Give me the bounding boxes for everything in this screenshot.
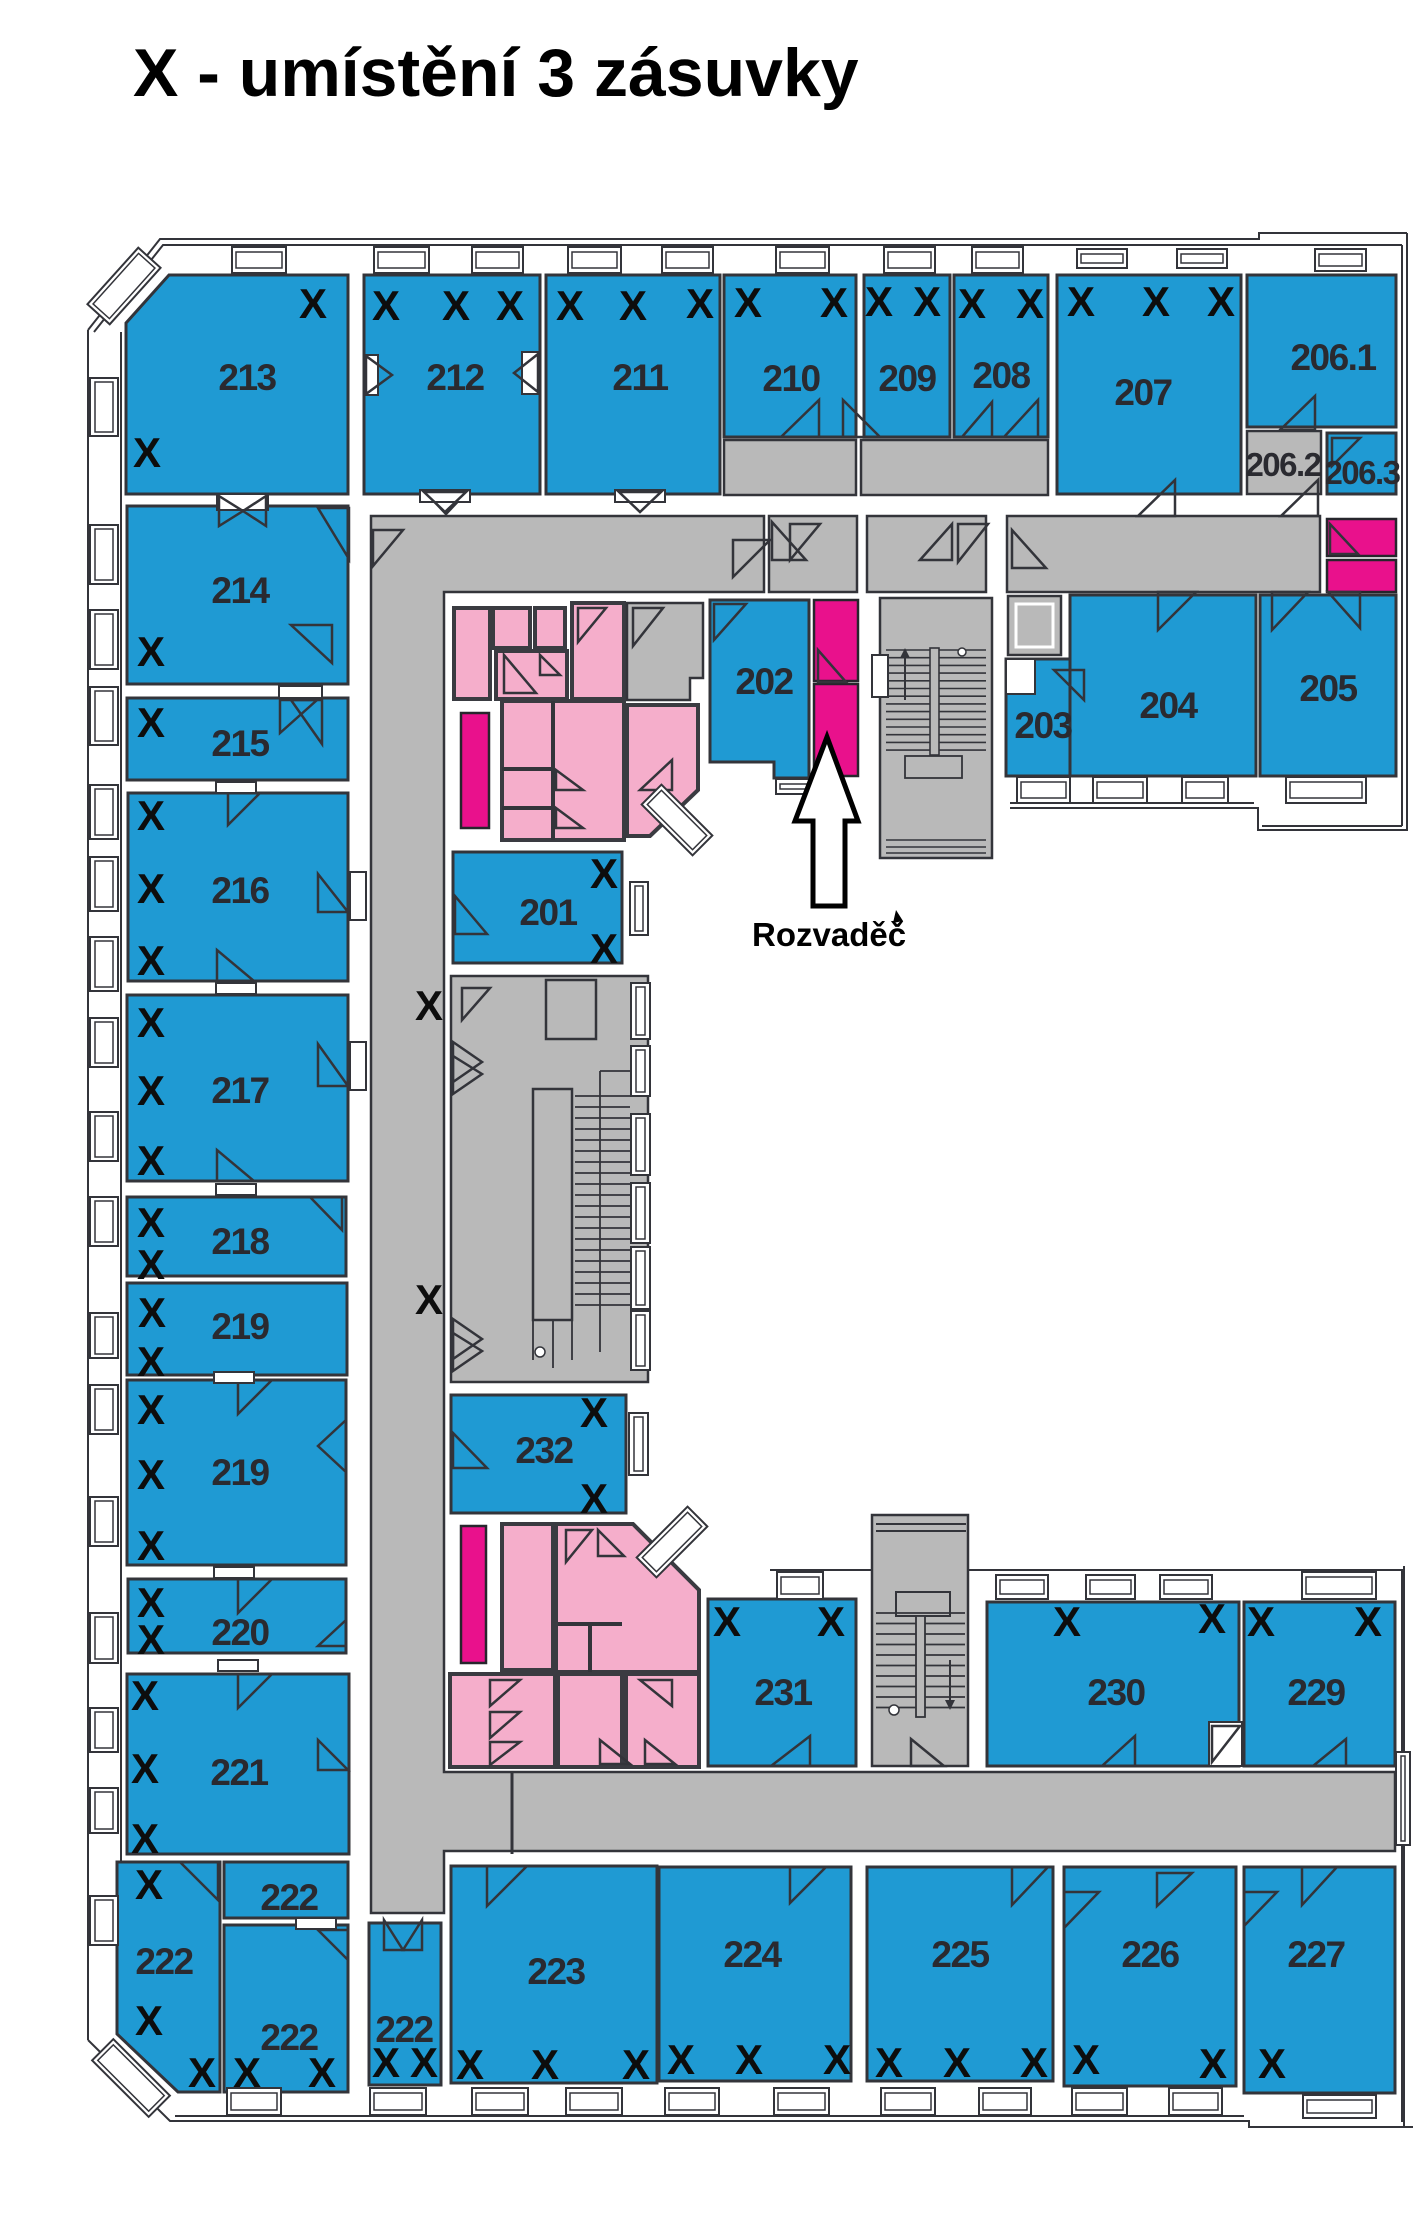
svg-text:226: 226 xyxy=(1121,1934,1179,1975)
svg-text:219: 219 xyxy=(211,1306,269,1347)
svg-text:X: X xyxy=(590,925,618,972)
svg-text:X: X xyxy=(137,999,165,1046)
svg-text:X: X xyxy=(415,1276,443,1323)
svg-text:206.2: 206.2 xyxy=(1245,446,1321,483)
svg-text:211: 211 xyxy=(612,357,668,398)
svg-text:210: 210 xyxy=(762,358,820,399)
svg-text:230: 230 xyxy=(1087,1672,1145,1713)
svg-text:225: 225 xyxy=(931,1934,989,1975)
svg-text:X: X xyxy=(1016,280,1044,327)
svg-text:X: X xyxy=(686,280,714,327)
svg-text:X: X xyxy=(1020,2039,1048,2086)
svg-text:205: 205 xyxy=(1299,668,1357,709)
svg-text:X: X xyxy=(137,628,165,675)
svg-text:X: X xyxy=(943,2039,971,2086)
svg-text:X: X xyxy=(137,1338,165,1385)
svg-text:208: 208 xyxy=(972,355,1030,396)
svg-text:X: X xyxy=(1198,1595,1226,1642)
svg-text:X: X xyxy=(137,792,165,839)
svg-text:X: X xyxy=(137,937,165,984)
svg-text:X: X xyxy=(580,1475,608,1522)
svg-text:X: X xyxy=(137,1451,165,1498)
svg-text:215: 215 xyxy=(211,723,269,764)
svg-text:X: X xyxy=(1072,2036,1100,2083)
svg-text:X: X xyxy=(823,2036,851,2083)
svg-text:X: X xyxy=(137,1241,165,1288)
svg-text:209: 209 xyxy=(878,358,936,399)
svg-text:X: X xyxy=(865,278,893,325)
svg-text:X: X xyxy=(1067,278,1095,325)
svg-text:X: X xyxy=(619,282,647,329)
svg-text:X: X xyxy=(1207,278,1235,325)
svg-text:X: X xyxy=(137,1616,165,1663)
svg-text:X: X xyxy=(135,1861,163,1908)
svg-text:223: 223 xyxy=(527,1951,585,1992)
svg-text:X: X xyxy=(531,2041,559,2088)
svg-text:X: X xyxy=(137,699,165,746)
svg-text:X: X xyxy=(913,278,941,325)
svg-text:X: X xyxy=(131,1745,159,1792)
svg-text:X: X xyxy=(137,1137,165,1184)
svg-text:X: X xyxy=(875,2039,903,2086)
svg-text:X: X xyxy=(188,2049,216,2096)
svg-text:224: 224 xyxy=(723,1934,782,1975)
svg-text:202: 202 xyxy=(735,661,793,702)
svg-text:X: X xyxy=(137,1522,165,1569)
svg-text:X: X xyxy=(622,2041,650,2088)
svg-text:222: 222 xyxy=(375,2009,433,2050)
svg-text:X: X xyxy=(735,2036,763,2083)
svg-text:X: X xyxy=(496,282,524,329)
svg-text:201: 201 xyxy=(519,892,577,933)
svg-text:X: X xyxy=(133,429,161,476)
svg-text:X: X xyxy=(556,282,584,329)
svg-text:204: 204 xyxy=(1139,685,1198,726)
svg-text:218: 218 xyxy=(211,1221,269,1262)
svg-text:X: X xyxy=(131,1815,159,1862)
svg-text:X: X xyxy=(958,280,986,327)
svg-text:232: 232 xyxy=(515,1430,573,1471)
svg-text:X: X xyxy=(817,1598,845,1645)
svg-text:217: 217 xyxy=(211,1070,268,1111)
svg-text:X: X xyxy=(372,282,400,329)
svg-text:229: 229 xyxy=(1287,1672,1345,1713)
svg-text:227: 227 xyxy=(1287,1934,1344,1975)
svg-text:216: 216 xyxy=(211,870,269,911)
svg-text:X: X xyxy=(137,865,165,912)
svg-text:222: 222 xyxy=(260,2017,318,2058)
svg-text:X: X xyxy=(299,280,327,327)
svg-text:X: X xyxy=(442,282,470,329)
svg-text:213: 213 xyxy=(218,357,276,398)
svg-text:X - umístění 3 zásuvky: X - umístění 3 zásuvky xyxy=(133,35,859,111)
svg-text:Rozvaděč: Rozvaděč xyxy=(752,916,906,953)
svg-text:207: 207 xyxy=(1114,372,1171,413)
svg-text:231: 231 xyxy=(754,1672,812,1713)
svg-text:221: 221 xyxy=(210,1752,268,1793)
svg-text:X: X xyxy=(1142,278,1170,325)
svg-text:X: X xyxy=(137,1067,165,1114)
svg-text:X: X xyxy=(667,2036,695,2083)
svg-text:206.1: 206.1 xyxy=(1290,337,1376,378)
svg-text:222: 222 xyxy=(260,1877,318,1918)
svg-text:220: 220 xyxy=(211,1612,269,1653)
svg-text:X: X xyxy=(131,1672,159,1719)
svg-text:212: 212 xyxy=(426,357,484,398)
svg-text:X: X xyxy=(135,1997,163,2044)
svg-text:X: X xyxy=(713,1598,741,1645)
svg-text:206.3: 206.3 xyxy=(1324,454,1400,491)
svg-text:X: X xyxy=(1258,2040,1286,2087)
svg-text:X: X xyxy=(734,279,762,326)
svg-text:X: X xyxy=(1247,1598,1275,1645)
svg-text:214: 214 xyxy=(211,570,270,611)
svg-text:X: X xyxy=(1053,1598,1081,1645)
svg-text:X: X xyxy=(456,2041,484,2088)
svg-text:X: X xyxy=(138,1289,166,1336)
svg-text:203: 203 xyxy=(1014,705,1072,746)
svg-text:X: X xyxy=(1199,2040,1227,2087)
svg-text:X: X xyxy=(137,1386,165,1433)
svg-text:222: 222 xyxy=(135,1941,193,1982)
svg-text:X: X xyxy=(820,279,848,326)
svg-text:X: X xyxy=(1354,1598,1382,1645)
svg-text:X: X xyxy=(590,850,618,897)
svg-text:219: 219 xyxy=(211,1452,269,1493)
svg-text:X: X xyxy=(580,1389,608,1436)
svg-text:X: X xyxy=(415,982,443,1029)
svg-text:X: X xyxy=(137,1199,165,1246)
svg-text:X: X xyxy=(233,2049,261,2096)
